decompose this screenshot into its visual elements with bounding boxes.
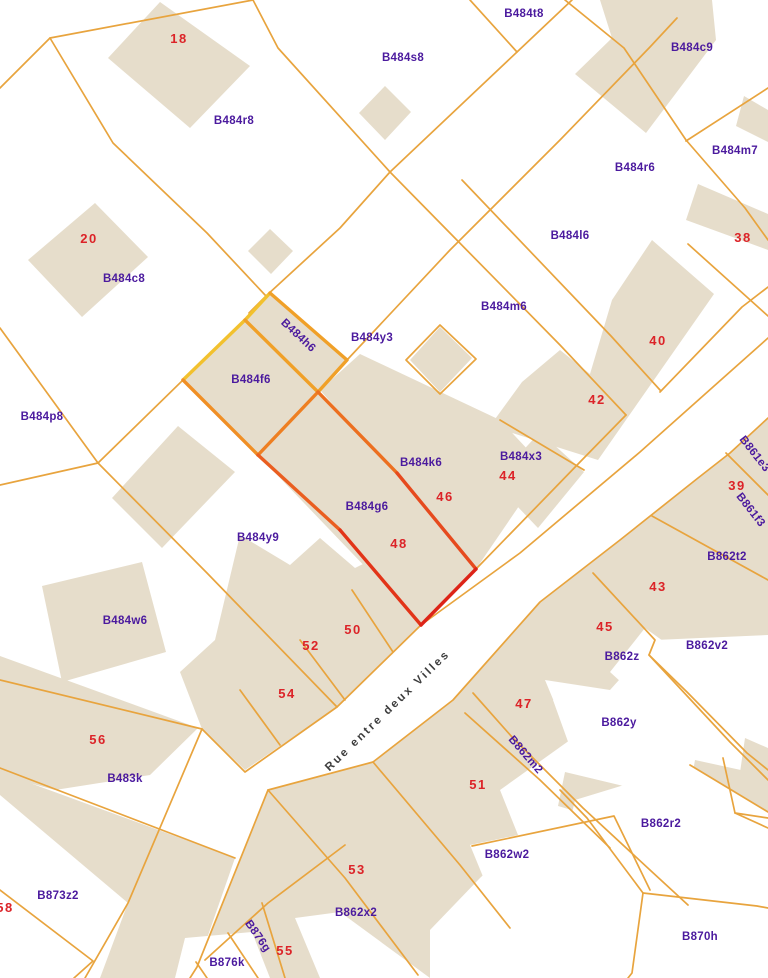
- parcel-id-label: B484c8: [103, 273, 145, 285]
- house-number-label: 53: [348, 862, 365, 877]
- house-number-label: 55: [276, 943, 293, 958]
- house-number-label: 45: [596, 619, 613, 634]
- parcel-id-label: B870h: [682, 931, 718, 943]
- parcel-id-label: B484m6: [481, 301, 527, 313]
- house-number-label: 42: [588, 392, 605, 407]
- parcel-id-label: B484x3: [500, 451, 542, 463]
- parcel-id-label: B484g6: [346, 501, 389, 513]
- parcel-id-label: B862y: [601, 717, 637, 729]
- parcel-id-label: B873z2: [37, 890, 78, 902]
- parcel-id-label: B484f6: [231, 374, 271, 386]
- house-number-label: 50: [344, 622, 361, 637]
- parcel-id-label: B862w2: [485, 849, 530, 861]
- parcel-id-label: B484w6: [103, 615, 148, 627]
- house-number-label: 38: [734, 230, 751, 245]
- parcel-id-label: B876k: [209, 957, 245, 969]
- house-number-label: 56: [89, 732, 106, 747]
- parcel-id-label: B484y3: [351, 332, 393, 344]
- parcel-id-label: B862r2: [641, 818, 681, 830]
- parcel-id-label: B484c9: [671, 42, 713, 54]
- house-number-label: 48: [390, 536, 407, 551]
- house-number-label: 18: [170, 31, 187, 46]
- parcel-id-label: B862v2: [686, 640, 728, 652]
- parcel-id-label: B862t2: [707, 551, 747, 563]
- parcel-id-label: B484t8: [504, 8, 544, 20]
- house-number-label: 51: [469, 777, 486, 792]
- house-number-label: 43: [649, 579, 666, 594]
- house-number-label: 40: [649, 333, 666, 348]
- parcel-id-label: B862x2: [335, 907, 377, 919]
- parcel-id-label: B484p8: [21, 411, 64, 423]
- parcel-id-label: B484r6: [615, 162, 655, 174]
- parcel-id-label: B484s8: [382, 52, 424, 64]
- house-number-label: 47: [515, 696, 532, 711]
- house-number-label: 54: [278, 686, 295, 701]
- house-number-label: 58: [0, 900, 14, 915]
- house-number-label: 20: [80, 231, 97, 246]
- parcel-id-label: B484y9: [237, 532, 279, 544]
- parcel-id-label: B483k: [107, 773, 143, 785]
- parcel-id-label: B484m7: [712, 145, 758, 157]
- parcel-id-label: B484k6: [400, 457, 442, 469]
- house-number-label: 46: [436, 489, 453, 504]
- house-number-label: 52: [302, 638, 319, 653]
- parcel-id-label: B484l6: [551, 230, 590, 242]
- parcel-id-label: B862z: [605, 651, 640, 663]
- house-number-label: 44: [499, 468, 516, 483]
- cadastral-map-svg[interactable]: 18B484t8B484s8B484c9B484r8B484m7B484r620…: [0, 0, 768, 978]
- parcel-id-label: B484r8: [214, 115, 254, 127]
- cadastral-map-canvas[interactable]: 18B484t8B484s8B484c9B484r8B484m7B484r620…: [0, 0, 768, 978]
